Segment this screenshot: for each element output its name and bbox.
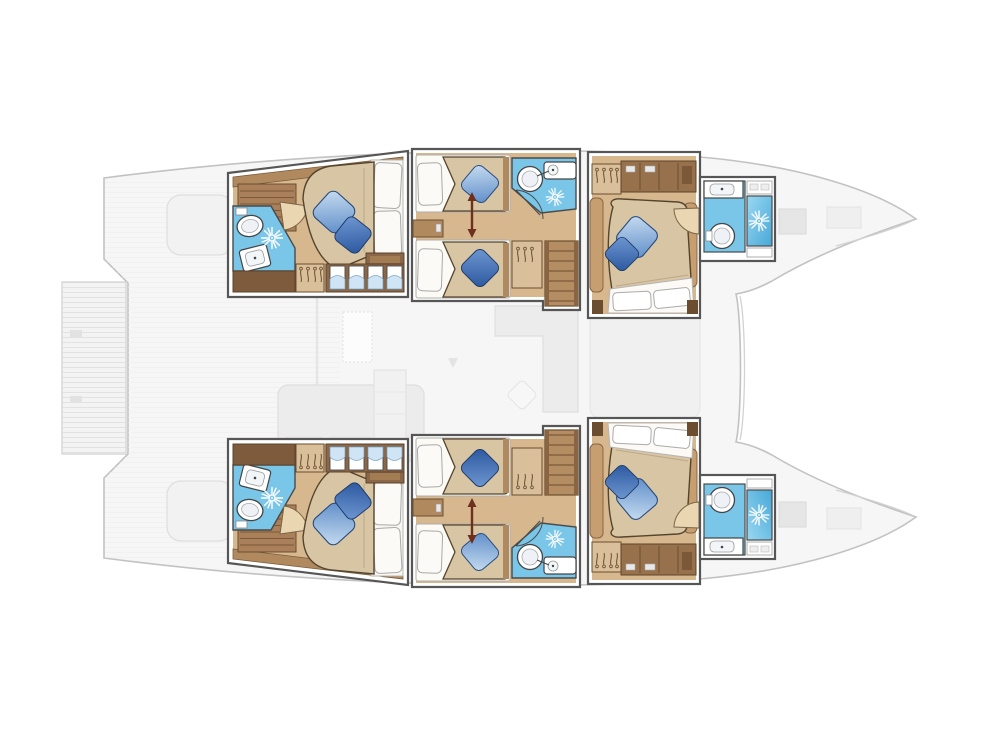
bed-pillow <box>417 163 442 206</box>
galley-block <box>374 370 406 442</box>
twin-bed-forward <box>416 155 510 212</box>
cockpit-table <box>343 312 372 362</box>
bed-pillow <box>653 287 691 309</box>
catamaran-floor-plan <box>0 0 1004 753</box>
shelf-unit <box>621 161 696 192</box>
bed-foot-trim <box>503 243 509 297</box>
bed-pillow <box>373 162 402 208</box>
hanging-locker <box>512 241 542 288</box>
cabin-mid-starboard <box>412 426 580 587</box>
vanity-cabinet <box>233 271 295 292</box>
shower-spray-icon <box>546 188 564 206</box>
twin-bed-aft <box>416 240 510 298</box>
corner-post <box>687 300 698 314</box>
swim-platform <box>62 282 126 454</box>
stairs-to-saloon <box>545 241 578 306</box>
bed-pillow <box>417 249 442 292</box>
shower-spray-icon <box>749 211 769 231</box>
sink-icon <box>704 181 743 198</box>
platform-cleat <box>70 330 82 337</box>
cabin-forward-starboard <box>588 418 775 584</box>
cabin-aft-starboard <box>228 439 408 585</box>
shower-tray <box>747 248 772 257</box>
floor-plan-svg <box>0 0 1004 753</box>
platform-cleat <box>70 396 82 403</box>
side-ledge <box>590 198 603 292</box>
cabin-mid-port <box>412 149 580 310</box>
bathroom <box>700 177 775 261</box>
cabin-forward-port <box>588 152 775 318</box>
bed-pillow <box>613 291 652 311</box>
shower-spray-icon <box>262 228 283 249</box>
shower-stall <box>747 196 772 257</box>
bed-pillow <box>373 211 402 256</box>
cabin-aft-port <box>228 151 408 297</box>
corner-post <box>592 300 603 314</box>
bathroom-shelf <box>747 181 772 194</box>
hanging-locker <box>592 164 621 194</box>
locker-panes <box>326 264 404 292</box>
stern-bench-starboard <box>167 481 233 541</box>
soap-dish <box>236 208 247 215</box>
nightstand <box>413 220 443 237</box>
bed-foot-trim <box>503 157 509 211</box>
toilet-icon <box>518 167 543 192</box>
stern-bench-port <box>167 195 233 255</box>
hanging-locker <box>296 264 324 292</box>
